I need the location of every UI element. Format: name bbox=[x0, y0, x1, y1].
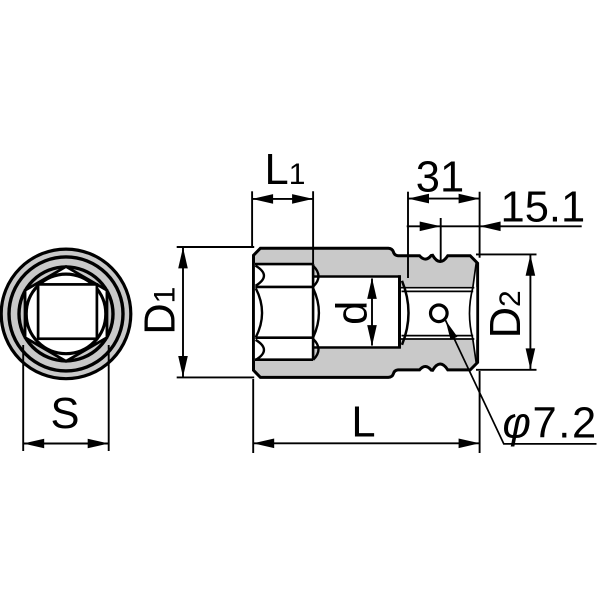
svg-text:31: 31 bbox=[416, 154, 464, 202]
svg-text:φ7.2: φ7.2 bbox=[503, 400, 598, 448]
svg-text:15.1: 15.1 bbox=[501, 184, 586, 232]
svg-text:L: L bbox=[351, 399, 375, 447]
svg-text:S: S bbox=[50, 390, 79, 438]
svg-text:d: d bbox=[329, 301, 377, 325]
